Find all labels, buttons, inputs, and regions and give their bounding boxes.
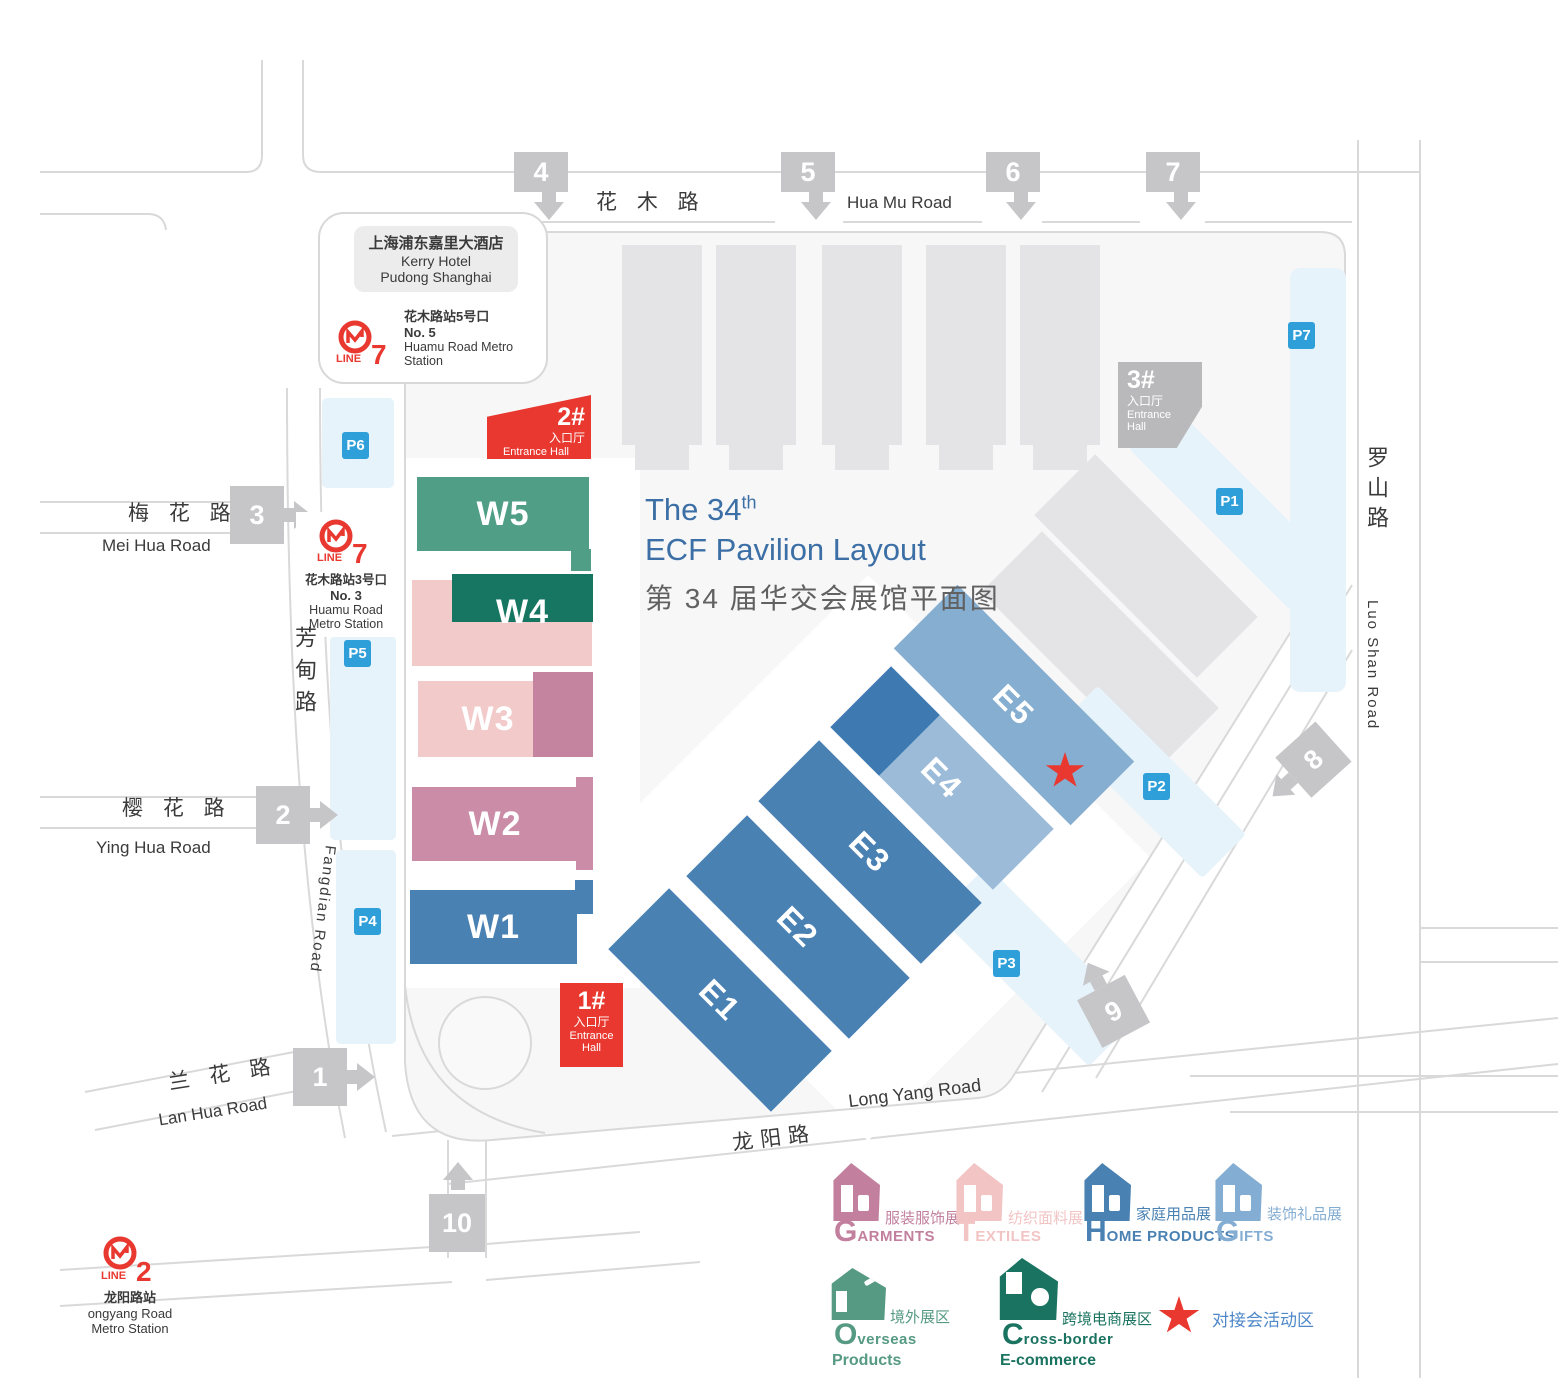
legend-crossborder-en: Cross-border xyxy=(1002,1318,1113,1352)
svg-text:2: 2 xyxy=(136,1256,152,1282)
hall-w2-annex xyxy=(576,777,593,870)
entrance-1-en: Entrance Hall xyxy=(560,1030,623,1054)
hall-w4-label: W4 xyxy=(455,592,590,632)
hall-w2-label: W2 xyxy=(412,787,578,861)
road-meihua-en: Mei Hua Road xyxy=(102,536,211,556)
metro3-exit-cn: 花木路站3号口 xyxy=(296,569,396,588)
road-yinghua-en: Ying Hua Road xyxy=(96,838,211,858)
metro5-exit-cn: 花木路站5号口 xyxy=(404,306,546,325)
gate-4-label: 4 xyxy=(533,157,548,188)
hall-e4-label: E4 xyxy=(914,750,971,807)
gate-5-arrow-icon xyxy=(801,192,831,220)
map-canvas: W5 W4 W3 W2 W1 E1 E2 E3 E4 E5 1# 入口厅 Ent… xyxy=(0,0,1558,1378)
legend-crossborder: 跨境电商展区 Cross-border E-commerce xyxy=(998,1258,1158,1370)
gate-2-arrow-icon xyxy=(310,801,338,829)
legend-gifts-cn: 装饰礼品展 xyxy=(1267,1203,1342,1224)
gate-1-label: 1 xyxy=(312,1062,327,1093)
hotel-name-en2: Pudong Shanghai xyxy=(354,269,518,285)
gate-2-label: 2 xyxy=(275,800,290,831)
parking-p6: P6 xyxy=(342,432,369,459)
svg-text:7: 7 xyxy=(352,538,368,564)
gate-9-label: 9 xyxy=(1100,994,1128,1028)
entrance-2-en: Entrance Hall xyxy=(487,446,585,458)
road-luoshan-cn: 罗山路 xyxy=(1360,446,1392,536)
road-huamu-cn: 花 木 路 xyxy=(596,186,706,216)
gate-4: 4 xyxy=(514,152,568,192)
hall-w1: W1 xyxy=(410,890,577,964)
legend-overseas-en: Overseas xyxy=(834,1318,917,1352)
svg-text:LINE: LINE xyxy=(101,1270,126,1282)
legend-overseas: 境外展区 Overseas Products xyxy=(830,1262,960,1370)
hall-e5-label: E5 xyxy=(986,677,1043,734)
legend-activity-cn: 对接会活动区 xyxy=(1212,1306,1314,1331)
road-luoshan-en: Luo Shan Road xyxy=(1364,600,1381,730)
legend-textiles-en: TEXTILES xyxy=(957,1215,1041,1249)
gate-4-arrow-icon xyxy=(534,192,564,220)
parking-p3: P3 xyxy=(993,950,1020,977)
metro3-exit-en: No. 3 xyxy=(296,588,396,603)
gate-10-arrow-icon xyxy=(443,1162,473,1190)
parking-p4: P4 xyxy=(354,908,381,935)
legend-garments-en: GARMENTS xyxy=(834,1215,935,1249)
hall-e2-label: E2 xyxy=(770,899,827,956)
gate-3-label: 3 xyxy=(249,500,264,531)
title-line1: The 34th xyxy=(645,490,1000,530)
gate-10-label: 10 xyxy=(442,1208,472,1239)
home-products-icon xyxy=(1083,1163,1131,1221)
hall-w1-label: W1 xyxy=(410,890,577,964)
hotel-name-en1: Kerry Hotel xyxy=(354,253,518,269)
gate-5: 5 xyxy=(781,152,835,192)
kerry-hotel-block: 上海浦东嘉里大酒店 Kerry Hotel Pudong Shanghai LI… xyxy=(318,212,548,384)
gifts-icon xyxy=(1214,1163,1262,1221)
garments-icon xyxy=(832,1163,880,1221)
title-line2: ECF Pavilion Layout xyxy=(645,530,1000,570)
gate-1: 1 xyxy=(293,1048,347,1106)
title-line3: 第 34 届华交会展馆平面图 xyxy=(645,577,1000,617)
hall-w5: W5 xyxy=(417,477,589,551)
metro-line7-icon: LINE 7 xyxy=(334,317,396,370)
svg-text:LINE: LINE xyxy=(317,552,342,564)
overseas-products-icon xyxy=(830,1268,886,1320)
entrance-1-num: 1# xyxy=(560,987,623,1016)
parking-p1: P1 xyxy=(1216,488,1243,515)
entrance-1-cn: 入口厅 xyxy=(560,1016,623,1030)
metro5-exit-en: No. 5 xyxy=(404,325,546,340)
entrance-3-en: Entrance Hall xyxy=(1127,409,1179,433)
hall-w5-label: W5 xyxy=(417,477,589,551)
entrance-3-num: 3# xyxy=(1127,366,1202,395)
metro-line7b-icon: LINE 7 xyxy=(296,516,396,569)
legend-activity: 对接会活动区 xyxy=(1158,1296,1200,1336)
hotel-name-cn: 上海浦东嘉里大酒店 xyxy=(354,232,518,253)
hall-e1-label: E1 xyxy=(692,972,749,1029)
gate-6-arrow-icon xyxy=(1006,192,1036,220)
legend-garments: 服装服饰展 GARMENTS xyxy=(832,1163,954,1249)
gate-1-arrow-icon xyxy=(347,1063,375,1091)
hall-w5-annex xyxy=(571,549,591,571)
gate-7: 7 xyxy=(1146,152,1200,192)
legend-overseas-en2: Products xyxy=(832,1352,901,1370)
gate-7-arrow-icon xyxy=(1166,192,1196,220)
metro3-station1: Huamu Road xyxy=(296,603,396,617)
title-superscript: th xyxy=(742,493,757,513)
legend-textiles: 纺织面料展 TEXTILES xyxy=(955,1163,1077,1249)
gate-6-label: 6 xyxy=(1005,157,1020,188)
metro-line7-no3: LINE 7 花木路站3号口 No. 3 Huamu Road Metro St… xyxy=(296,512,396,637)
crossborder-ecommerce-icon xyxy=(998,1258,1058,1320)
road-fangdian-cn: 芳甸路 xyxy=(288,626,320,722)
legend-gifts: 装饰礼品展 GIFTS xyxy=(1214,1163,1336,1249)
entrance-3-cn: 入口厅 xyxy=(1127,395,1202,409)
entrance-2-cn: 入口厅 xyxy=(487,432,585,446)
svg-text:LINE: LINE xyxy=(336,353,361,365)
road-meihua-cn: 梅 花 路 xyxy=(128,497,238,527)
gate-6: 6 xyxy=(986,152,1040,192)
legend-home-en: HOME PRODUCTS xyxy=(1085,1215,1235,1249)
legend-crossborder-en2: E-commerce xyxy=(1000,1352,1096,1370)
legend-star-icon xyxy=(1158,1296,1200,1336)
metro-line2: LINE 2 龙阳路站 ongyang Road Metro Station xyxy=(70,1232,190,1336)
hall-w1-annex xyxy=(575,880,593,914)
parking-p2: P2 xyxy=(1143,773,1170,800)
metro-line2-icon: LINE 2 xyxy=(70,1232,190,1287)
road-yinghua-cn: 樱 花 路 xyxy=(122,792,232,822)
kerry-hotel-card: 上海浦东嘉里大酒店 Kerry Hotel Pudong Shanghai xyxy=(354,226,518,292)
parking-p7: P7 xyxy=(1288,322,1315,349)
gate-2: 2 xyxy=(256,786,310,844)
road-huamu-en: Hua Mu Road xyxy=(847,193,952,213)
gate-3: 3 xyxy=(230,486,284,544)
gate-5-label: 5 xyxy=(800,157,815,188)
gate-7-label: 7 xyxy=(1165,157,1180,188)
metro2-en1: ongyang Road xyxy=(70,1306,190,1321)
page-title: The 34th ECF Pavilion Layout 第 34 届华交会展馆… xyxy=(645,490,1000,617)
gate-10: 10 xyxy=(429,1194,485,1252)
hall-w2: W2 xyxy=(412,787,578,861)
gate-8-label: 8 xyxy=(1297,743,1329,776)
metro2-en2: Metro Station xyxy=(70,1321,190,1336)
legend-home-products: 家庭用品展 HOME PRODUCTS xyxy=(1083,1163,1213,1249)
legend-gifts-en: GIFTS xyxy=(1216,1215,1274,1249)
metro5-station: Huamu Road Metro Station xyxy=(404,340,546,368)
metro2-cn: 龙阳路站 xyxy=(70,1287,190,1306)
entrance-1: 1# 入口厅 Entrance Hall xyxy=(560,983,623,1067)
svg-text:7: 7 xyxy=(371,339,387,365)
parking-p5: P5 xyxy=(344,640,371,667)
textiles-icon xyxy=(955,1163,1003,1221)
hall-e3-label: E3 xyxy=(842,824,899,881)
metro-line7-no5: LINE 7 花木路站5号口 No. 5 Huamu Road Metro St… xyxy=(334,306,546,370)
hall-w3-label: W3 xyxy=(418,681,558,757)
